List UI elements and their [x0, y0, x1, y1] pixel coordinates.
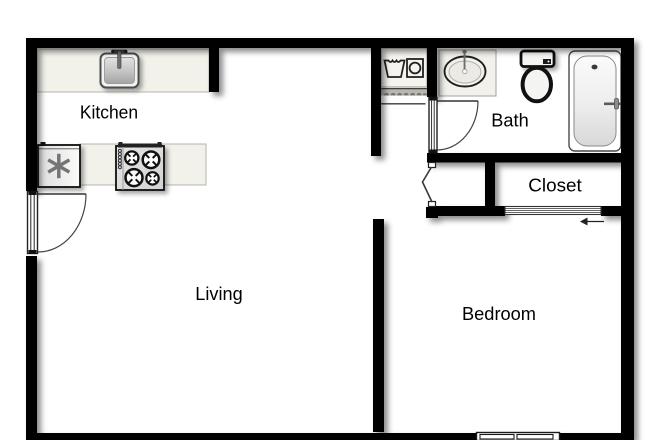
- svg-text:Closet: Closet: [528, 174, 582, 195]
- svg-text:Bedroom: Bedroom: [462, 303, 536, 324]
- svg-text:Bath: Bath: [491, 109, 528, 130]
- svg-text:Kitchen: Kitchen: [80, 101, 138, 122]
- svg-text:Living: Living: [195, 283, 242, 304]
